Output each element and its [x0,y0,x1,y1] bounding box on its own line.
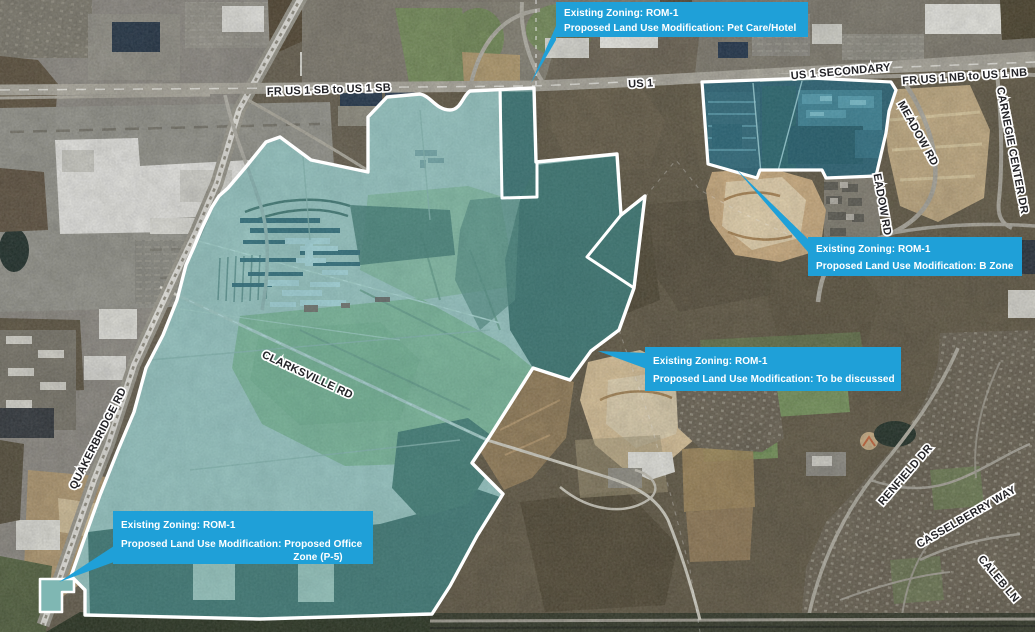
svg-text:Proposed Land Use Modification: Proposed Land Use Modification: Pet Care… [564,23,797,34]
svg-text:US 1: US 1 [628,77,654,90]
svg-text:Existing Zoning: ROM-1: Existing Zoning: ROM-1 [121,520,236,531]
svg-text:Proposed Land Use Modification: Proposed Land Use Modification: To be di… [653,374,895,385]
svg-text:Proposed Land Use Modification: Proposed Land Use Modification: B Zone [816,261,1014,272]
svg-text:Existing Zoning: ROM-1: Existing Zoning: ROM-1 [653,356,768,367]
svg-text:Existing Zoning: ROM-1: Existing Zoning: ROM-1 [564,8,679,19]
svg-text:Proposed Land Use Modification: Proposed Land Use Modification: Proposed… [121,539,363,550]
svg-text:Zone (P-5): Zone (P-5) [293,552,342,563]
svg-text:Existing Zoning: ROM-1: Existing Zoning: ROM-1 [816,244,931,255]
